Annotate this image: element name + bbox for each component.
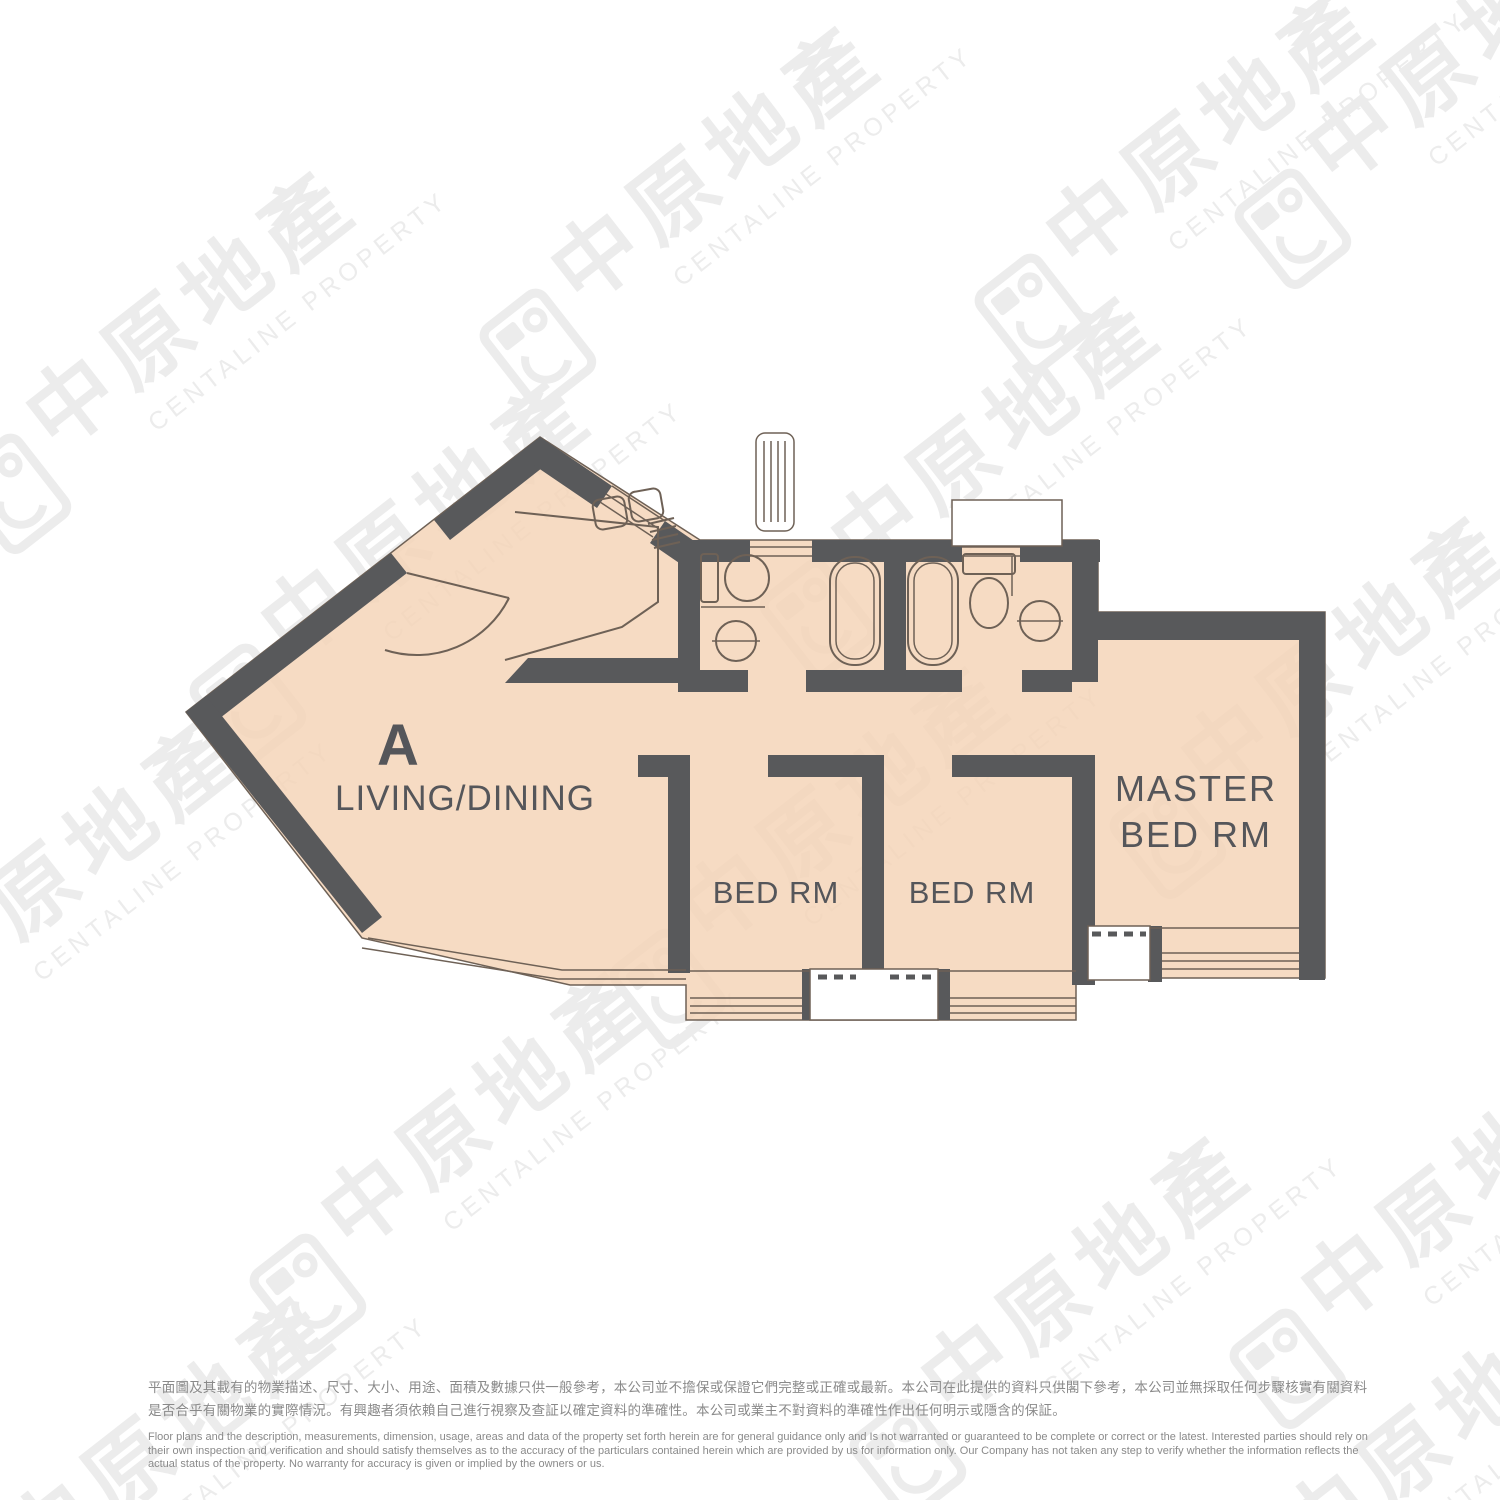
living-dining-label: LIVING/DINING — [335, 779, 595, 818]
bedroom2-label: BED RM — [909, 875, 1036, 910]
platform — [952, 500, 1062, 546]
bedroom1-label: BED RM — [713, 875, 840, 910]
disclaimer-chinese: 平面圖及其載有的物業描述、尺寸、大小、用途、面積及數據只供一般參考，本公司並不擔… — [148, 1377, 1368, 1422]
master-bedroom-label: MASTER — [1115, 768, 1277, 809]
ac-platform — [810, 969, 938, 1020]
exterior-fixtures — [756, 433, 1062, 546]
washing-machine-icon — [756, 433, 794, 531]
master-bedroom-label: BED RM — [1120, 814, 1272, 855]
disclaimer-english: Floor plans and the description, measure… — [148, 1431, 1368, 1472]
floor-plan: A LIVING/DINING BED RM BED RM MASTER BED… — [0, 0, 1500, 1500]
page: 中原地產CENTALINE PROPERTY中原地產CENTALINE PROP… — [0, 0, 1500, 1500]
disclaimer: 平面圖及其載有的物業描述、尺寸、大小、用途、面積及數據只供一般參考，本公司並不擔… — [148, 1377, 1368, 1472]
unit-label: A — [377, 713, 419, 778]
